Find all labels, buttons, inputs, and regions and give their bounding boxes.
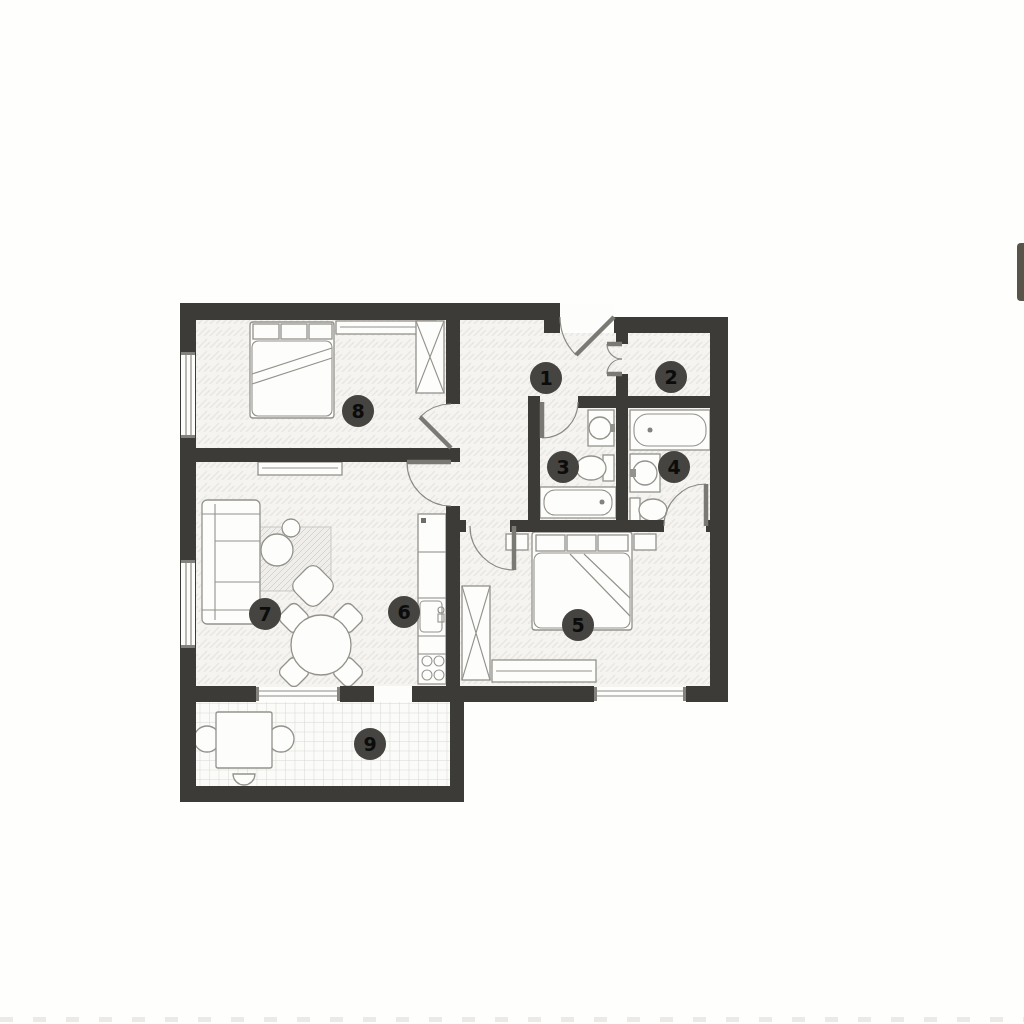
fridge-mark — [421, 518, 426, 523]
pillow-icon — [253, 324, 279, 339]
bathtub-icon — [540, 487, 616, 518]
wall — [544, 303, 560, 333]
window — [181, 560, 195, 648]
coffee-table-icon — [261, 534, 293, 566]
bathtub-icon — [630, 410, 710, 450]
stool-icon — [282, 519, 300, 537]
wall — [446, 520, 466, 532]
room-label-5: 5 — [571, 614, 584, 636]
room-label-1: 1 — [539, 367, 552, 389]
room-label-9: 9 — [363, 733, 376, 755]
pillow-icon — [536, 535, 565, 551]
toilet-icon — [576, 455, 614, 481]
balcony-door-opening — [374, 686, 412, 702]
window — [181, 352, 195, 438]
wall — [180, 686, 256, 702]
entrance-opening — [560, 303, 614, 333]
toilet-icon — [630, 498, 667, 522]
wall — [412, 686, 594, 702]
room-label-3: 3 — [556, 456, 569, 478]
room-label-4: 4 — [667, 456, 680, 478]
sink-icon — [630, 454, 660, 492]
bottom-edge-marks — [0, 1017, 1024, 1022]
wall — [614, 317, 726, 333]
pillow-icon — [567, 535, 596, 551]
balcony-wall — [450, 702, 464, 802]
floor-plan-image: 1 2 3 4 5 6 7 8 9 — [0, 0, 1024, 1024]
wall — [180, 303, 558, 320]
nightstand-icon — [634, 534, 656, 550]
nightstand-icon — [506, 534, 528, 550]
wall — [616, 374, 628, 532]
room-label-2: 2 — [664, 366, 677, 388]
wall — [340, 686, 374, 702]
room-label-8: 8 — [351, 400, 364, 422]
room-label-6: 6 — [397, 601, 410, 623]
window — [594, 687, 686, 701]
balcony-table-icon — [216, 712, 272, 768]
wall — [710, 317, 728, 702]
cropped-right-edge-element — [1017, 243, 1024, 301]
pillow-icon — [309, 324, 332, 339]
balcony-wall — [180, 786, 464, 802]
wall — [628, 396, 712, 408]
pillow-icon — [598, 535, 628, 551]
floor-plan-svg: 1 2 3 4 5 6 7 8 9 — [0, 0, 1024, 1024]
window — [256, 687, 340, 701]
sofa-icon — [202, 500, 260, 624]
wall — [446, 317, 460, 404]
wall — [628, 520, 664, 532]
pillow-icon — [281, 324, 307, 339]
wall — [706, 520, 722, 532]
room-label-7: 7 — [258, 603, 271, 625]
wall — [578, 396, 616, 408]
wall — [510, 520, 616, 532]
wall — [616, 328, 628, 344]
wardrobe-icon — [416, 321, 444, 393]
kitchen-counter-icon — [418, 514, 446, 684]
wall — [528, 396, 540, 532]
sink-icon — [588, 410, 615, 446]
wall — [686, 686, 728, 702]
wall — [446, 532, 460, 686]
wardrobe-icon — [462, 586, 490, 680]
